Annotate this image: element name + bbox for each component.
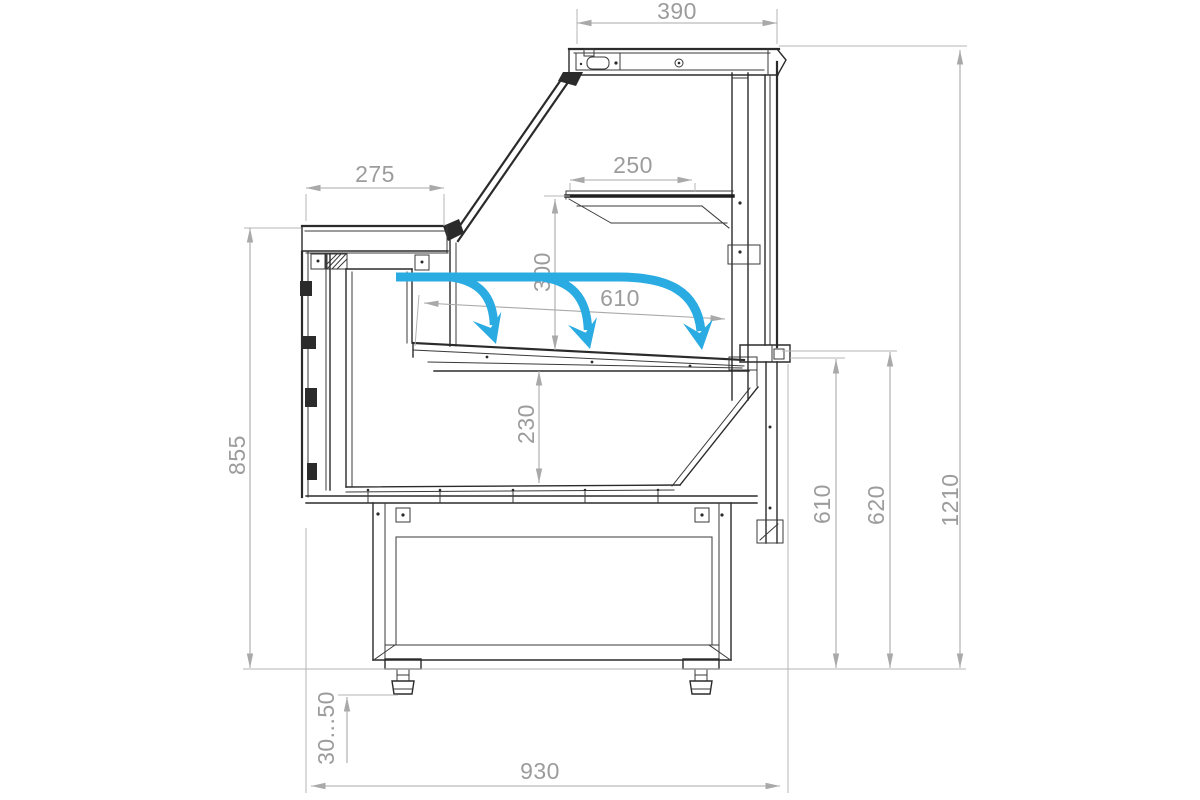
dim-label-620: 620 xyxy=(863,485,889,525)
upper-shelf xyxy=(566,191,733,228)
dim-label-610-deck: 610 xyxy=(600,285,640,311)
dim-label-390: 390 xyxy=(657,0,697,24)
dim-label-930: 930 xyxy=(520,758,560,784)
dim-label-230: 230 xyxy=(513,404,539,444)
adjustable-feet xyxy=(385,659,719,694)
body-bottom xyxy=(346,387,758,492)
dim-label-30-50: 30...50 xyxy=(313,691,339,765)
dim-855: 855 xyxy=(224,228,301,668)
pedestal-frame xyxy=(373,503,731,660)
dim-label-610-right: 610 xyxy=(809,484,835,524)
dim-1210: 1210 xyxy=(779,46,967,668)
display-deck xyxy=(413,343,757,371)
display-case-structure xyxy=(300,49,790,694)
dim-275: 275 xyxy=(306,161,444,226)
dim-label-250: 250 xyxy=(613,152,653,178)
dim-label-1210: 1210 xyxy=(937,473,963,526)
dim-label-300: 300 xyxy=(529,252,555,292)
dim-30-50: 30...50 xyxy=(313,691,398,765)
dim-390: 390 xyxy=(577,0,777,44)
air-duct xyxy=(346,269,412,487)
canopy xyxy=(558,49,786,86)
dim-610-right: 610 xyxy=(790,358,845,668)
dim-930: 930 xyxy=(306,364,788,793)
dim-230: 230 xyxy=(513,371,539,483)
front-glass xyxy=(765,62,777,347)
airflow-branch-1 xyxy=(450,277,494,325)
rear-counter xyxy=(302,226,448,270)
front-panel xyxy=(757,362,783,543)
technical-drawing-page: 390 275 250 300 610 230 xyxy=(0,0,1200,800)
dimension-annotations: 390 275 250 300 610 230 xyxy=(224,0,967,793)
airflow-arrows xyxy=(396,277,717,353)
dim-620: 620 xyxy=(782,351,897,668)
display-case-section-drawing: 390 275 250 300 610 230 xyxy=(0,0,1200,800)
front-column xyxy=(728,73,760,400)
rear-wall xyxy=(300,252,330,497)
dim-250: 250 xyxy=(570,152,695,192)
dim-label-855: 855 xyxy=(224,435,250,475)
dim-label-275: 275 xyxy=(355,161,395,187)
lamp-fixture xyxy=(576,49,620,70)
